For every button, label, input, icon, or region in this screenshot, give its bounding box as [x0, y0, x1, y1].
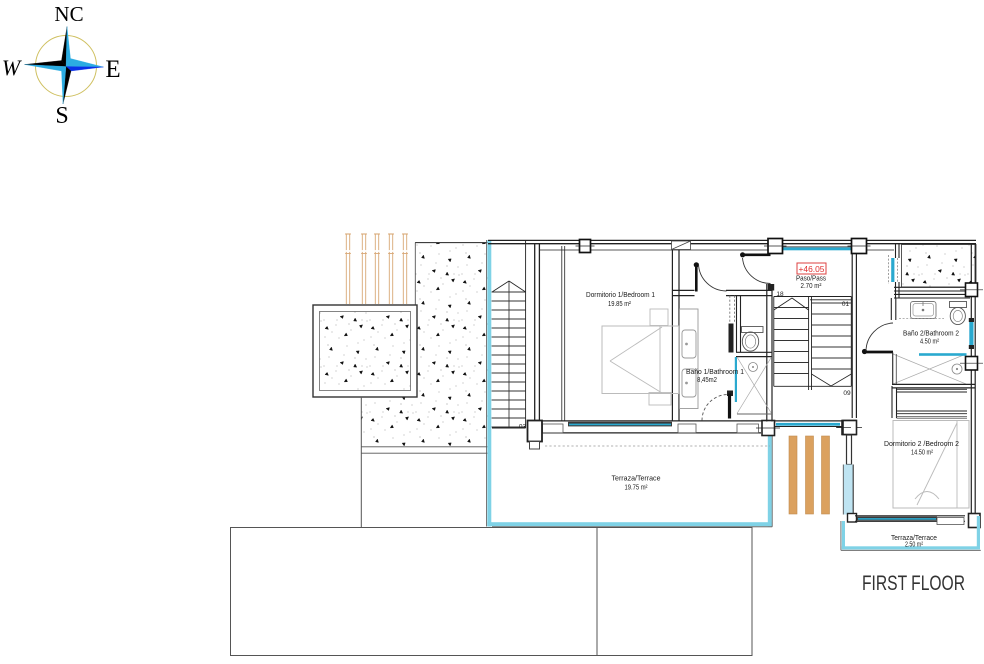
- svg-text:01: 01: [842, 301, 850, 308]
- svg-text:NC: NC: [54, 2, 83, 26]
- svg-text:Terraza/Terrace: Terraza/Terrace: [612, 473, 661, 482]
- svg-text:03: 03: [519, 423, 527, 430]
- svg-text:09: 09: [843, 390, 851, 397]
- svg-text:+46.05: +46.05: [799, 265, 826, 274]
- svg-text:18: 18: [776, 291, 784, 298]
- svg-text:S: S: [55, 103, 68, 129]
- svg-text:19.75 m²: 19.75 m²: [625, 484, 649, 491]
- svg-text:FIRST FLOOR: FIRST FLOOR: [862, 571, 965, 595]
- svg-text:2.70 m²: 2.70 m²: [801, 283, 823, 290]
- svg-text:2.50 m²: 2.50 m²: [905, 541, 924, 548]
- svg-text:14.50 m²: 14.50 m²: [911, 447, 933, 456]
- svg-text:8,45m2: 8,45m2: [697, 375, 717, 384]
- svg-text:W: W: [2, 55, 22, 80]
- svg-text:Dormitorio 1/Bedroom 1: Dormitorio 1/Bedroom 1: [586, 290, 655, 299]
- svg-text:Paso/Pass: Paso/Pass: [796, 276, 826, 283]
- svg-text:19.85 m²: 19.85 m²: [608, 299, 631, 308]
- svg-text:E: E: [105, 56, 120, 83]
- svg-text:4.50 m²: 4.50 m²: [920, 336, 939, 345]
